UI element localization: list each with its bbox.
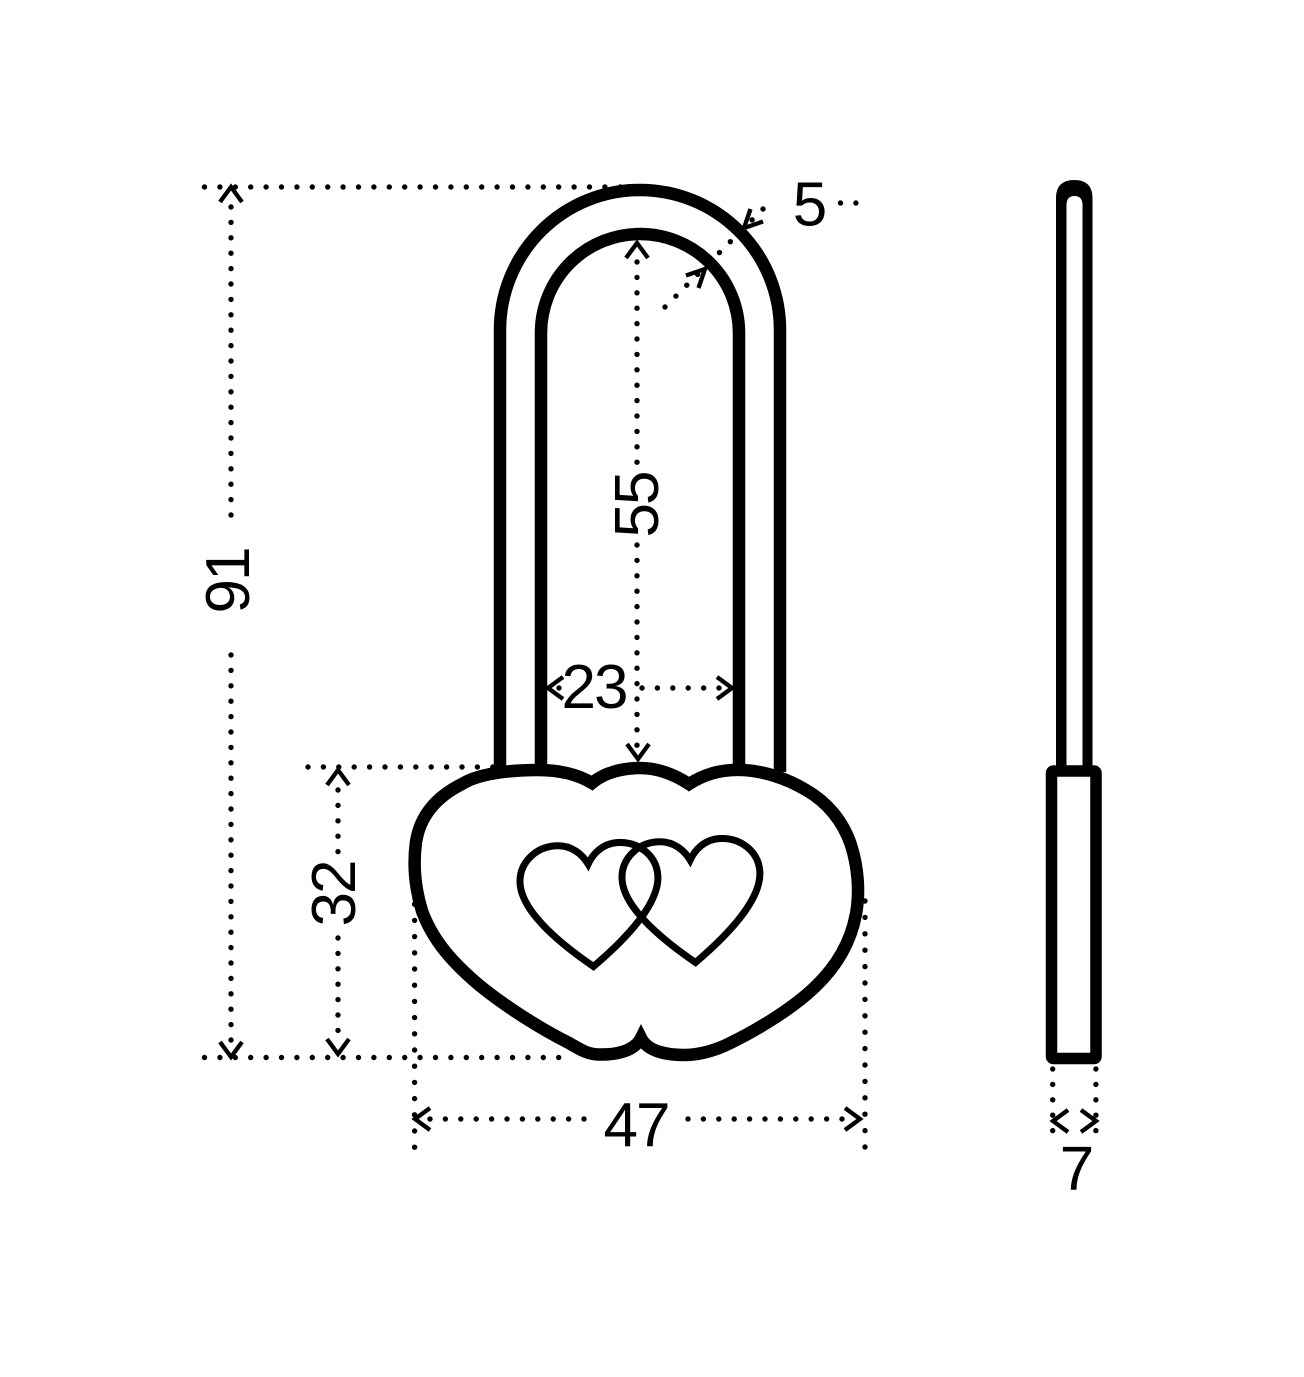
svg-text:7: 7 [1060, 1135, 1092, 1204]
svg-text:5: 5 [793, 171, 825, 240]
svg-text:32: 32 [300, 862, 369, 927]
svg-text:55: 55 [603, 473, 672, 538]
svg-text:23: 23 [562, 653, 627, 722]
svg-text:47: 47 [604, 1091, 669, 1160]
svg-text:91: 91 [194, 549, 263, 614]
